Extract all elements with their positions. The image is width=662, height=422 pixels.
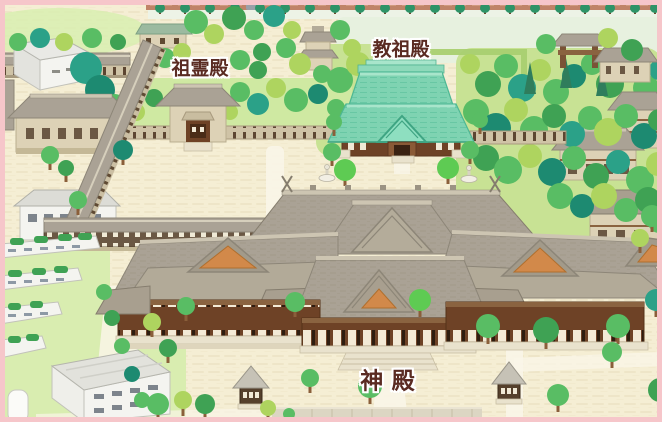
temple-grounds-map: 祖霊殿 教祖殿 神 殿 <box>0 0 662 422</box>
label-soreiden[interactable]: 祖霊殿 <box>171 60 228 79</box>
map-illustration <box>0 0 662 422</box>
label-shinden[interactable]: 神 殿 <box>360 370 415 393</box>
label-kyosoden[interactable]: 教祖殿 <box>372 41 429 60</box>
